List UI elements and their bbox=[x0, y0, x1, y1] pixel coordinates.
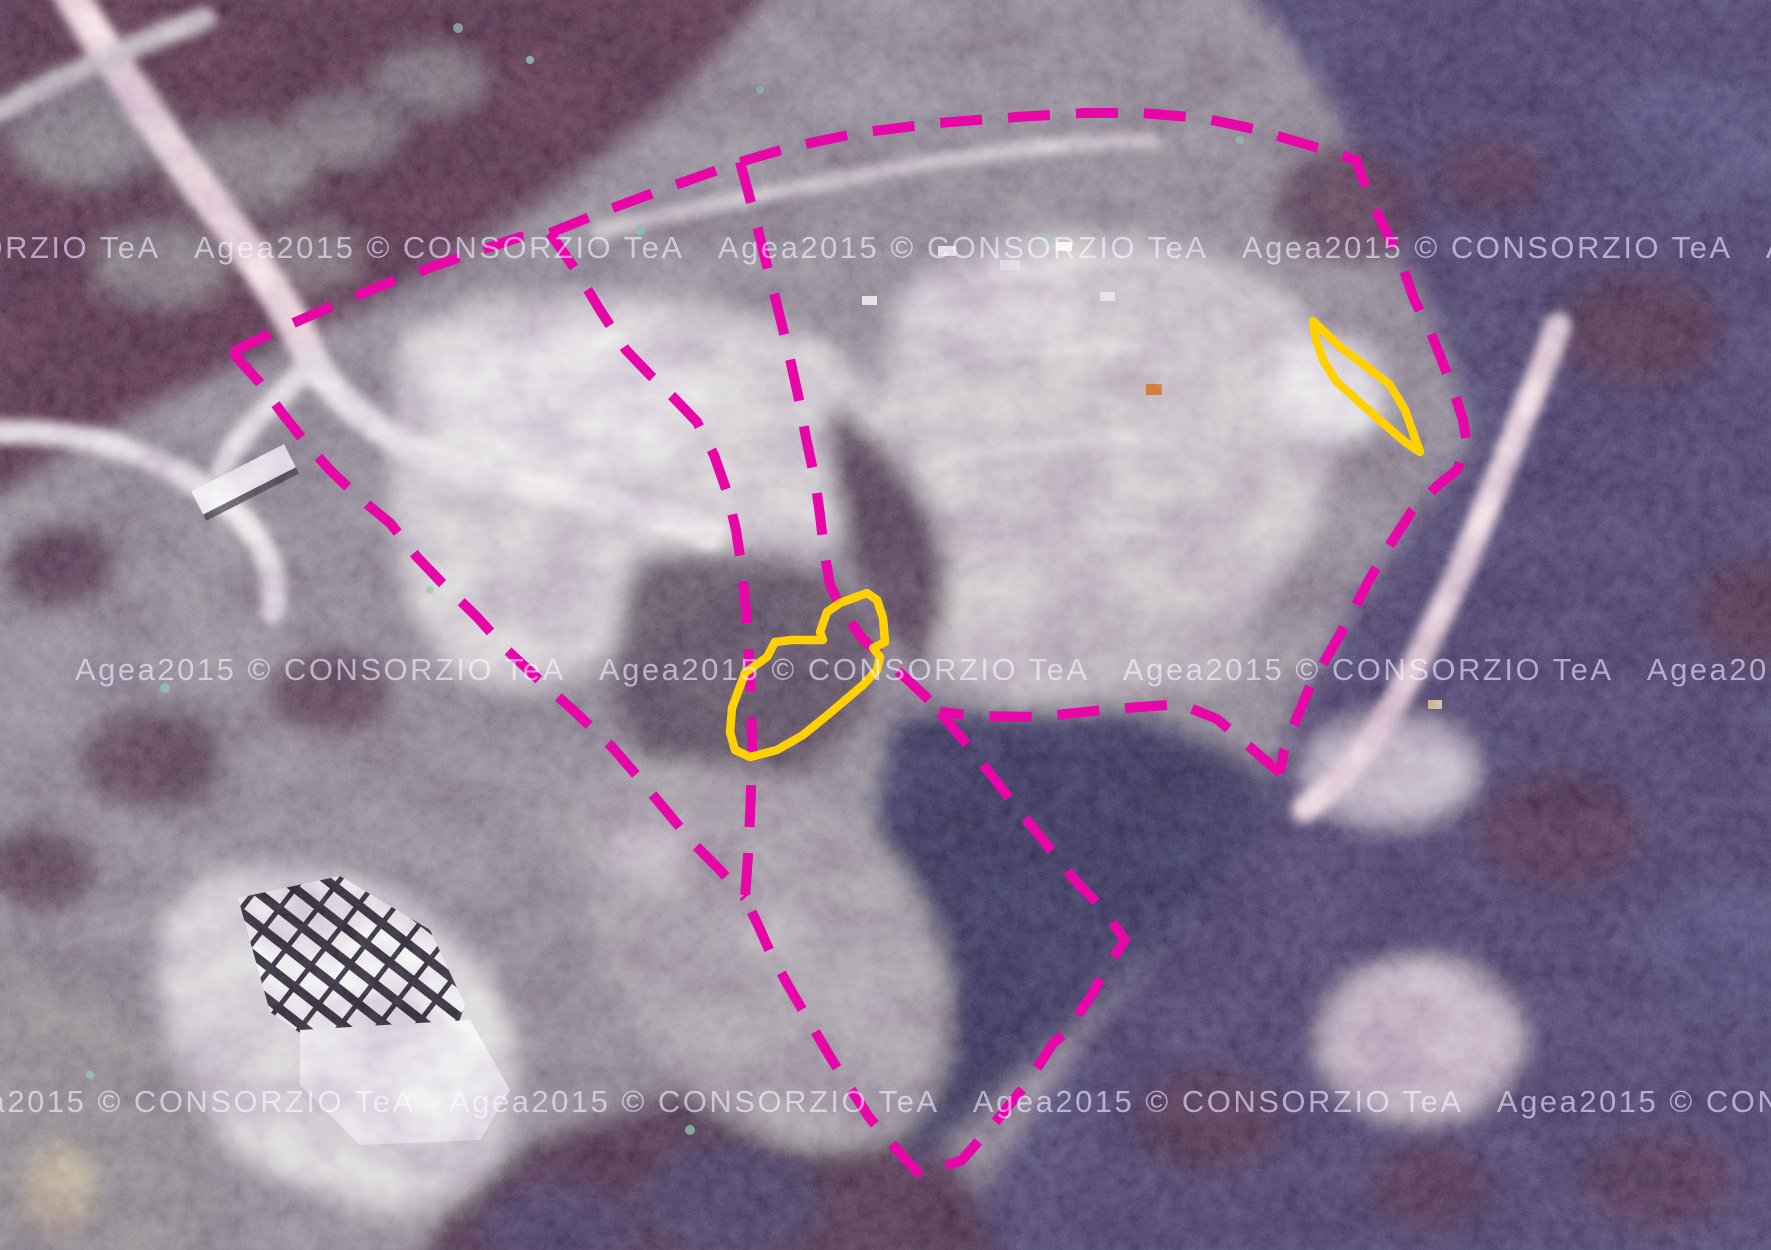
watermark-text: Agea2015 © CONSORZIO TeA Agea2015 © CONS… bbox=[75, 652, 1771, 687]
aerial-map-viewport: Agea2015 © CONSORZIO TeA Agea2015 © CONS… bbox=[0, 0, 1771, 1250]
aerial-map-image: Agea2015 © CONSORZIO TeA Agea2015 © CONS… bbox=[0, 0, 1771, 1250]
watermark-text: Agea2015 © CONSORZIO TeA Agea2015 © CONS… bbox=[0, 1084, 1771, 1119]
watermark-text: Agea2015 © CONSORZIO TeA Agea2015 © CONS… bbox=[0, 230, 1771, 265]
